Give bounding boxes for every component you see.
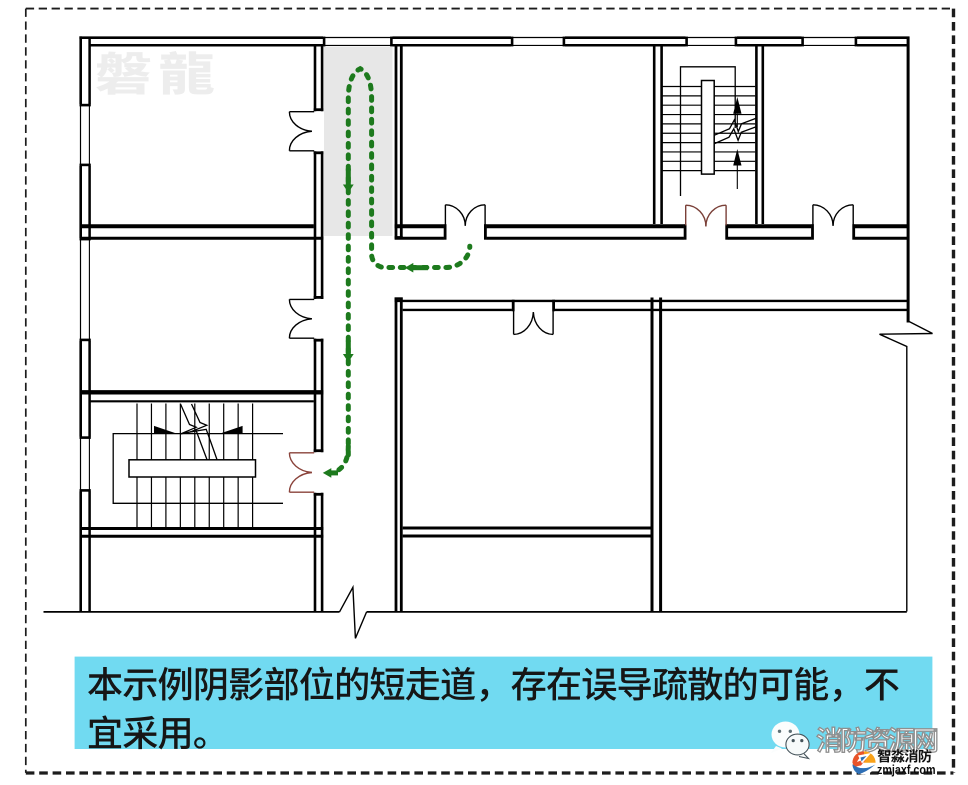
svg-text:zmjaxf.com: zmjaxf.com <box>877 762 936 777</box>
